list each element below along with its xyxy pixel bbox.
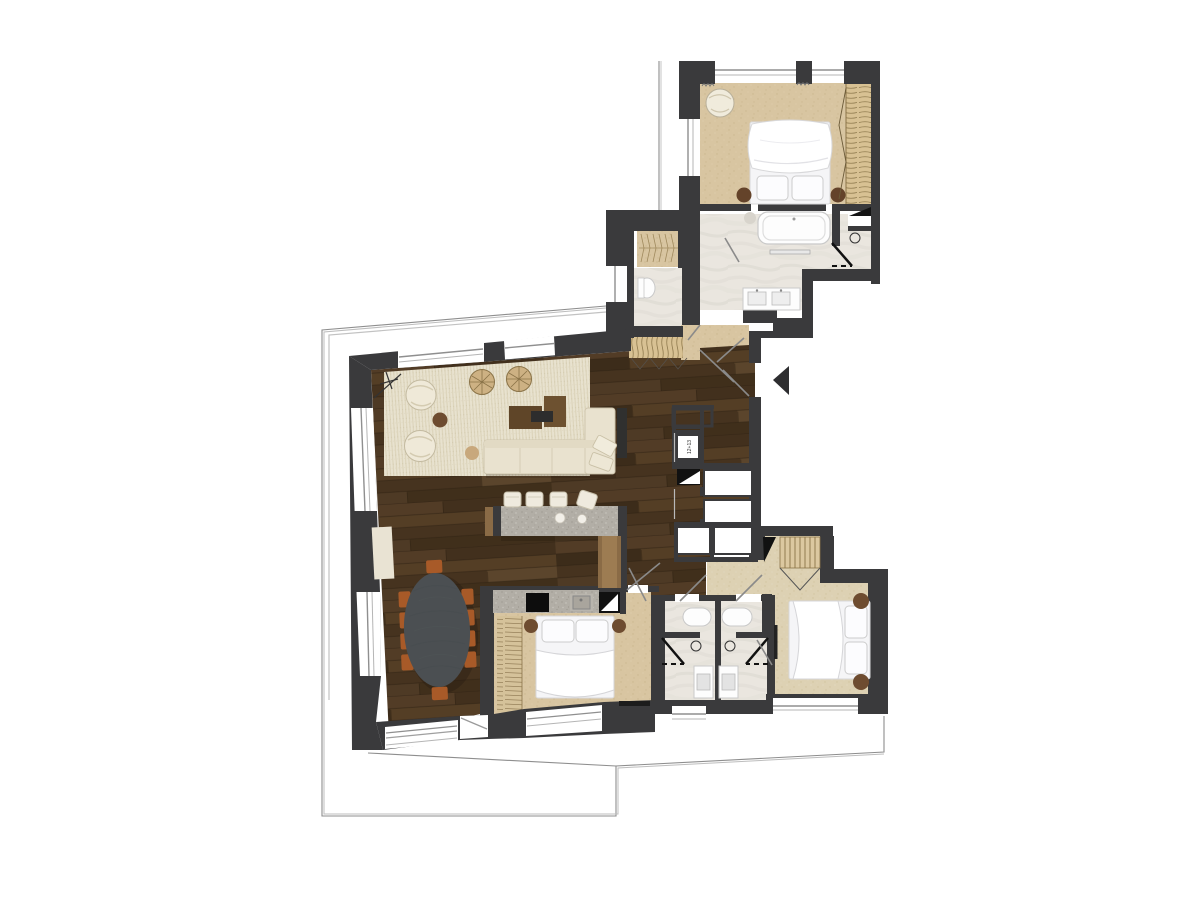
svg-text:12+13: 12+13 xyxy=(687,440,693,454)
